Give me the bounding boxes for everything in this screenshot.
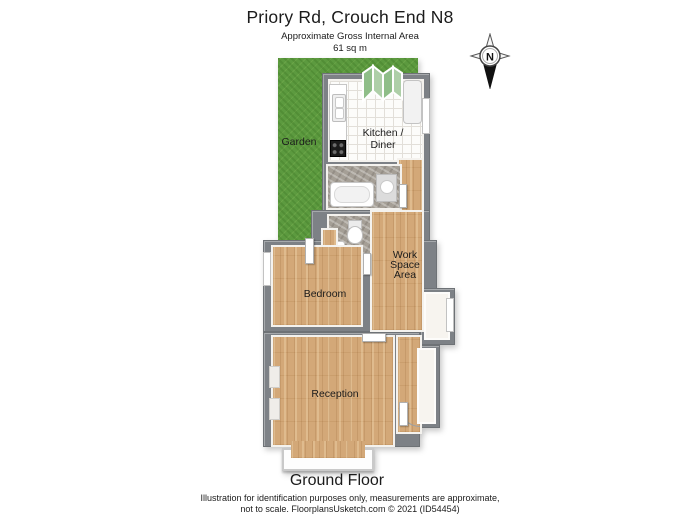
kitchen-sink-icon xyxy=(332,94,346,122)
front-door xyxy=(399,402,408,426)
bathtub-inner xyxy=(334,186,370,203)
porch-floor xyxy=(426,294,448,338)
workspace-door xyxy=(363,253,371,275)
chimney-alcove-lower xyxy=(269,398,280,420)
chimney-alcove-upper xyxy=(269,366,280,388)
bedroom-door xyxy=(305,238,314,264)
bedroom-label: Bedroom xyxy=(285,289,365,299)
shower-bowl xyxy=(380,180,394,194)
garden-label: Garden xyxy=(278,137,320,147)
kitchen-label-line1: Kitchen / xyxy=(348,127,418,139)
bedroom-floor xyxy=(273,247,361,325)
fridge-icon xyxy=(403,80,422,124)
porch-window xyxy=(446,298,454,332)
kitchen-label: Kitchen / Diner xyxy=(348,127,418,151)
reception-label: Reception xyxy=(295,389,375,399)
shower-basin-icon xyxy=(376,174,397,202)
workspace-label: Work Space Area xyxy=(380,250,430,280)
bedroom-window xyxy=(263,252,271,286)
disclaimer-line1: Illustration for identification purposes… xyxy=(0,493,700,503)
kitchen-window xyxy=(422,98,430,134)
bathroom-door xyxy=(399,184,407,208)
bay-window-floor xyxy=(291,441,365,458)
sink-bowl-top xyxy=(335,97,344,108)
kitchen-label-line2: Diner xyxy=(348,139,418,151)
toilet-icon xyxy=(347,226,363,244)
floor-name-label: Ground Floor xyxy=(237,472,437,490)
reception-door xyxy=(362,333,386,342)
disclaimer-line2: not to scale. FloorplansUsketch.com © 20… xyxy=(0,504,700,514)
floor-plan: Garden Kitchen / Diner Bedroom Work Spac… xyxy=(0,0,700,525)
bathtub-icon xyxy=(330,182,374,207)
bifold-garden-door-icon xyxy=(361,63,405,111)
side-return-floor xyxy=(419,350,434,422)
sink-bowl-bottom xyxy=(335,108,344,119)
workspace-label-line3: Area xyxy=(380,270,430,280)
cooktop-icon xyxy=(330,140,346,157)
